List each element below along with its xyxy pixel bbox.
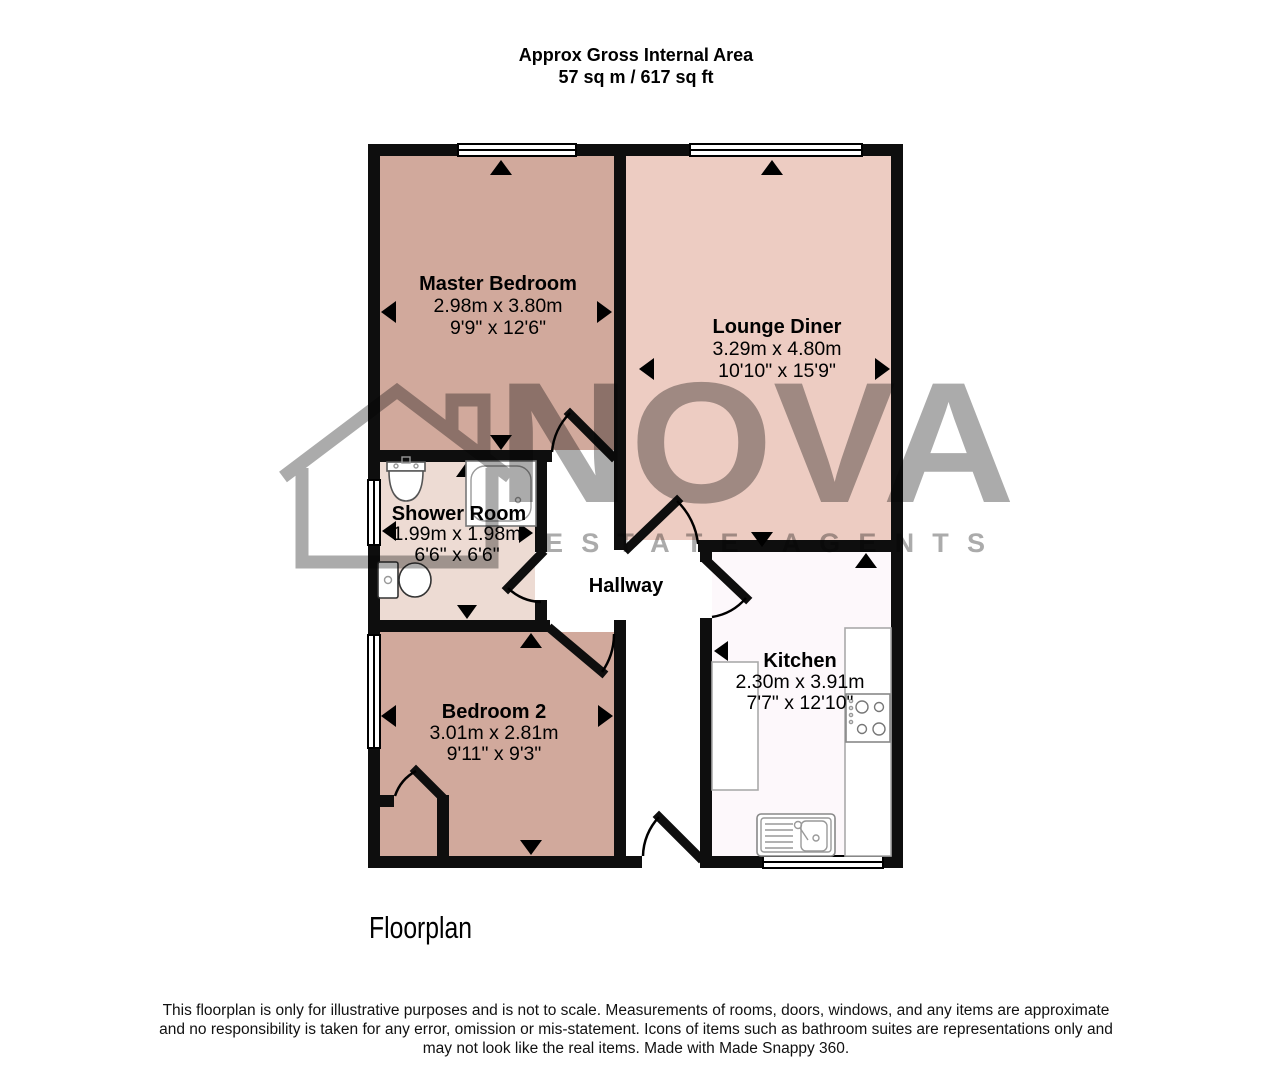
window-lounge-diner (690, 144, 862, 156)
room-dims-metric-kitchen: 2.30m x 3.91m (736, 671, 865, 693)
watermark-brand: NOVA (497, 347, 1015, 539)
room-label-master-bedroom: Master Bedroom (419, 273, 577, 295)
disclaimer-line3: may not look like the real items. Made w… (423, 1040, 849, 1057)
entry-door-opening (642, 856, 700, 868)
room-dims-metric-master-bedroom: 2.98m x 3.80m (434, 295, 563, 317)
room-label-hallway: Hallway (589, 575, 664, 597)
area-summary-line2: 57 sq m / 617 sq ft (558, 67, 713, 87)
window-bedroom-2 (368, 635, 380, 748)
disclaimer-line1: This floorplan is only for illustrative … (163, 1002, 1110, 1019)
wall-closet-top (368, 795, 394, 807)
room-label-bedroom-2: Bedroom 2 (442, 701, 546, 723)
wall-kitchen-left-lower (700, 618, 712, 868)
room-dims-imperial-kitchen: 7'7" x 12'10" (747, 692, 854, 714)
wall-closet-right (437, 795, 449, 868)
floorplan-caption: Floorplan (369, 910, 472, 945)
floorplan-page: Approx Gross Internal Area 57 sq m / 617… (0, 0, 1272, 1080)
wall-bedroom2-right (614, 620, 626, 868)
window-master-bedroom (458, 144, 576, 156)
room-dims-imperial-master-bedroom: 9'9" x 12'6" (450, 317, 546, 339)
window-kitchen (763, 856, 883, 868)
area-summary-line1: Approx Gross Internal Area (519, 45, 754, 65)
wall-bedroom2-top (368, 620, 550, 632)
room-dims-imperial-bedroom-2: 9'11" x 9'3" (447, 743, 542, 765)
floorplan-canvas: Approx Gross Internal Area 57 sq m / 617… (0, 0, 1272, 1080)
kitchen-sink-icon (757, 814, 835, 856)
disclaimer-line2: and no responsibility is taken for any e… (159, 1021, 1113, 1038)
room-label-kitchen: Kitchen (763, 650, 836, 672)
door-entry (643, 817, 699, 857)
room-dims-metric-bedroom-2: 3.01m x 2.81m (430, 722, 559, 744)
window-shower-room (368, 480, 380, 545)
room-label-lounge-diner: Lounge Diner (713, 316, 842, 338)
